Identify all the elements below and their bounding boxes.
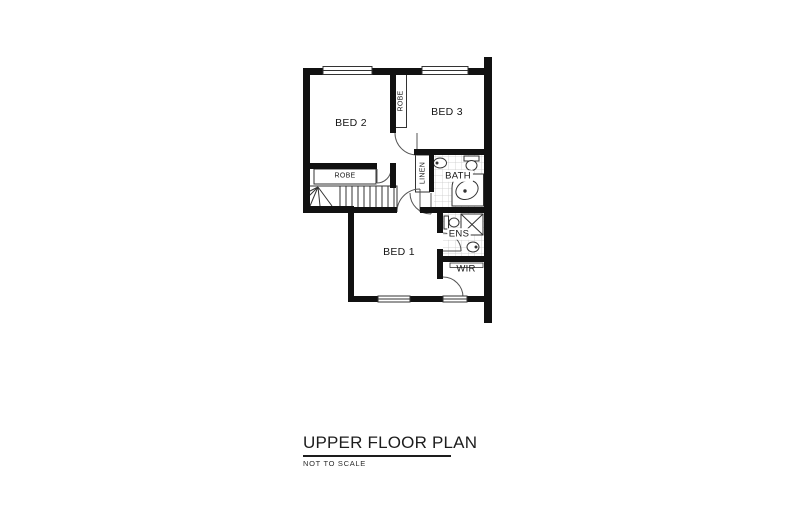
wall-bath-ens (420, 207, 484, 213)
title-underline (303, 455, 451, 457)
stair-treads (340, 186, 394, 207)
room-label-wir: WIR (456, 264, 475, 275)
staircase (306, 186, 397, 207)
ens-toilet (449, 218, 459, 227)
bed3-door-swing (395, 133, 417, 155)
wall-ens-left-lower (437, 249, 443, 257)
room-label-robe-lower: ROBE (334, 173, 355, 180)
plan-title: UPPER FLOOR PLAN (303, 433, 477, 453)
wall-bed1-left (348, 207, 354, 302)
bath-basin (434, 158, 447, 168)
plan-title-block: UPPER FLOOR PLAN NOT TO SCALE (303, 433, 477, 468)
ens-basin-tap (475, 246, 477, 248)
floor-plan-page: BED 2BED 3BED 1BATHENSWIRROBEROBELINEN U… (0, 0, 790, 527)
room-label-bath: BATH (445, 171, 471, 182)
wir-door-swing (443, 277, 463, 297)
room-label-ens: ENS (449, 229, 469, 240)
wall-bed3-bottom (414, 149, 484, 155)
room-label-bed-2: BED 2 (335, 117, 367, 129)
wall-right-exterior (484, 57, 492, 323)
wall-left-exterior (303, 68, 310, 213)
plan-scale-note: NOT TO SCALE (303, 459, 477, 468)
wall-bed2-robe (390, 75, 396, 133)
room-label-linen: LINEN (420, 162, 427, 184)
wall-bed2-bottom (303, 163, 377, 169)
bath-basin-tap (436, 162, 438, 164)
bath-toilet (466, 161, 477, 171)
bed2-door-swing (377, 169, 391, 183)
wall-stair-bottom (303, 206, 354, 213)
stair-outline (310, 186, 397, 207)
room-label-bed-3: BED 3 (431, 106, 463, 118)
wall-ens-wir (437, 256, 484, 262)
wall-wir-left (437, 262, 443, 279)
ens-toilet-cistern (444, 216, 449, 229)
bathtub-drain (464, 190, 466, 192)
room-label-bed-1: BED 1 (383, 246, 415, 258)
wall-bed1-top (354, 207, 397, 213)
room-label-robe-upper: ROBE (398, 90, 405, 111)
wall-linen-bath (429, 155, 434, 192)
wall-landing (390, 163, 396, 188)
wall-ens-left-upper (437, 213, 443, 233)
